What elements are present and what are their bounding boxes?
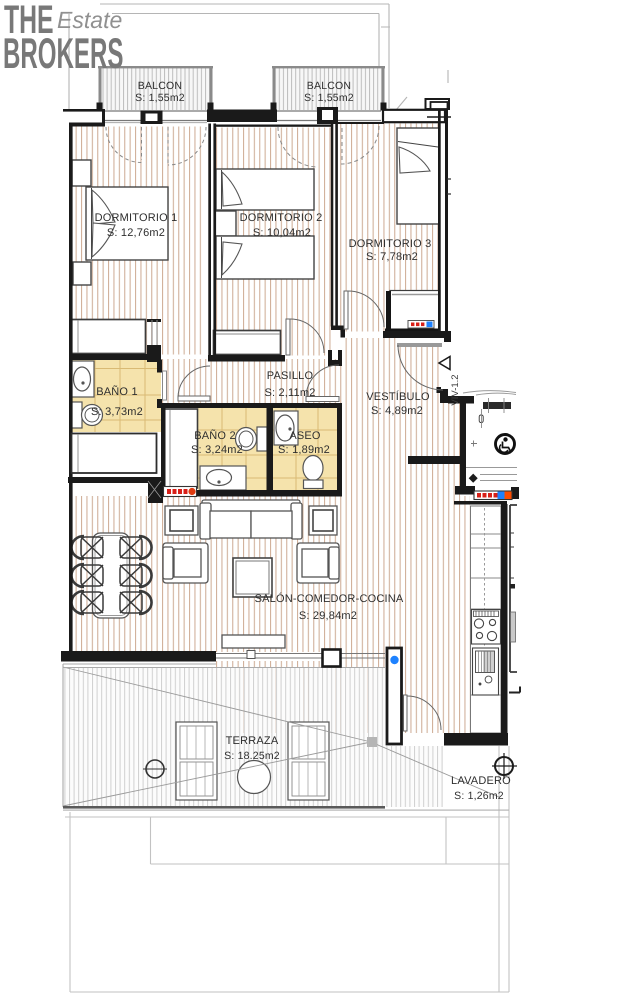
svg-text:Estate: Estate xyxy=(57,7,122,33)
svg-text:ASEO: ASEO xyxy=(289,430,321,442)
svg-text:BAÑO 1: BAÑO 1 xyxy=(96,385,138,398)
svg-text:S: 3,24m2: S: 3,24m2 xyxy=(191,444,243,456)
svg-text:S: 7,78m2: S: 7,78m2 xyxy=(366,251,418,263)
svg-text:SALÓN-COMEDOR-COCINA: SALÓN-COMEDOR-COCINA xyxy=(255,592,404,605)
svg-text:BROKERS: BROKERS xyxy=(3,30,123,78)
svg-text:VESTÍBULO: VESTÍBULO xyxy=(366,390,430,403)
svg-text:S: 10,04m2: S: 10,04m2 xyxy=(253,227,311,239)
svg-text:BAÑO 2: BAÑO 2 xyxy=(194,429,236,442)
svg-text:BALCON: BALCON xyxy=(307,80,351,92)
svg-text:DORMITORIO 2: DORMITORIO 2 xyxy=(240,212,323,224)
svg-text:S: 1,26m2: S: 1,26m2 xyxy=(454,790,504,802)
svg-text:S: 18.25m2: S: 18.25m2 xyxy=(224,750,280,762)
svg-text:BALCON: BALCON xyxy=(138,80,182,92)
svg-text:DORMITORIO 1: DORMITORIO 1 xyxy=(95,212,178,224)
svg-text:DORMITORIO 3: DORMITORIO 3 xyxy=(349,238,432,250)
svg-text:S: 12,76m2: S: 12,76m2 xyxy=(107,227,165,239)
svg-text:S: 1,89m2: S: 1,89m2 xyxy=(278,444,330,456)
svg-text:TERRAZA: TERRAZA xyxy=(226,735,279,747)
svg-text:LAVADERO: LAVADERO xyxy=(451,775,511,787)
svg-text:S: 3,73m2: S: 3,73m2 xyxy=(91,406,143,418)
svg-text:S: 4,89m2: S: 4,89m2 xyxy=(371,405,423,417)
svg-text:S: 2,11m2: S: 2,11m2 xyxy=(264,387,315,399)
svg-text:VIV-1.2: VIV-1.2 xyxy=(450,374,461,405)
svg-text:PASILLO: PASILLO xyxy=(267,370,314,382)
svg-text:S: 1,55m2: S: 1,55m2 xyxy=(304,92,354,104)
svg-text:S: 29,84m2: S: 29,84m2 xyxy=(299,610,357,622)
svg-text:S: 1,55m2: S: 1,55m2 xyxy=(135,92,185,104)
